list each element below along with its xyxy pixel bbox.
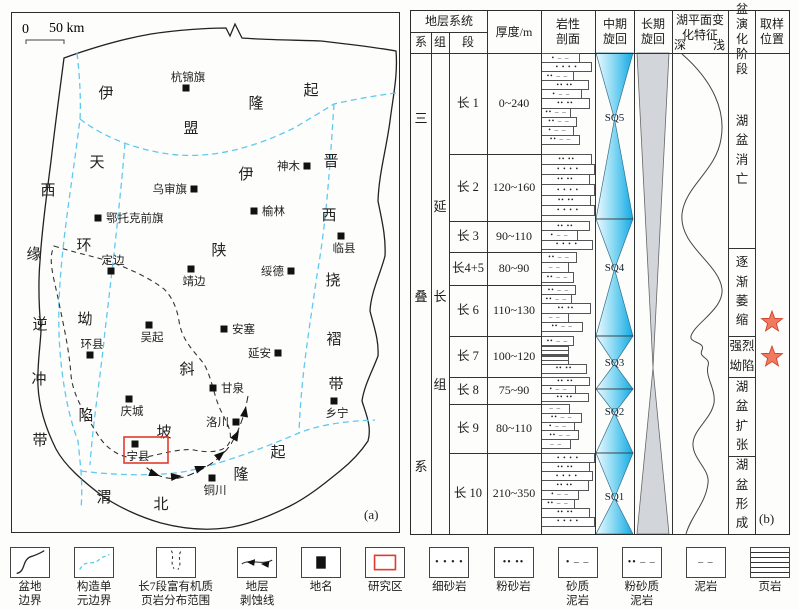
header-thickness: 厚度/m (487, 11, 541, 53)
legend-item-sandy: • – –砂质泥岩 (558, 547, 598, 609)
legend-label: 地名 (310, 581, 333, 595)
header-group: 组 (431, 32, 449, 53)
legend-label: 页岩 (758, 581, 781, 595)
legend-label-line: 泥岩 (694, 581, 717, 595)
legend-swatch-shale (750, 547, 790, 578)
unit-char: 带 (328, 376, 343, 393)
city-marker (188, 266, 195, 273)
legend-label-line: 粉砂岩 (496, 581, 531, 595)
lith-bed-siltym: •• – – (542, 322, 583, 332)
mid-cycle-triangle (596, 269, 633, 336)
legend-swatch-sandy: • – – (558, 547, 598, 578)
legend-label: 盆地边界 (19, 581, 42, 609)
stage-label: 强烈坳陷 (729, 337, 755, 376)
unit-char: 坡 (156, 424, 171, 441)
city-marker (209, 475, 216, 482)
member-cell: 长 8 (449, 377, 487, 404)
city-杭锦旗: 杭锦旗 (171, 70, 206, 92)
city-label: 榆林 (262, 204, 285, 218)
city-label: 吴起 (141, 331, 164, 344)
lith-bed-fine: • • • • (542, 517, 595, 527)
city-鄂托克前旗: 鄂托克前旗 (95, 211, 164, 225)
group-char: 延 (430, 196, 450, 215)
city-label: 甘泉 (221, 381, 244, 395)
legend-label-line: 地名 (310, 581, 333, 595)
unit-char: 逆 (32, 316, 47, 333)
erosion-tooth-glyph (247, 559, 256, 566)
city-marker (338, 233, 345, 240)
lithology-cell: • • • ••• ••• • • ••• ••• – –•• – –•• ••… (542, 453, 595, 534)
legend-label-line: 地层 (240, 581, 275, 595)
city-marker (304, 163, 311, 170)
legend-label: 研究区 (368, 581, 403, 595)
city-铜川: 铜川 (204, 475, 227, 498)
lith-bed-siltym: •• – – (542, 272, 574, 283)
legend-label-line: 泥岩 (624, 595, 659, 609)
city-临县: 临县 (333, 233, 356, 256)
city-label: 定边 (102, 253, 125, 267)
city-label: 靖边 (183, 275, 206, 288)
city-label: 洛川 (206, 415, 229, 429)
legend-swatch-siltym: •• – – (622, 547, 662, 578)
lithology-cell: •• – –•• – –•• ••– –•• – – (542, 285, 595, 336)
city-靖边: 靖边 (183, 266, 206, 289)
legend-item-fine: • • • •细砂岩 (429, 547, 469, 595)
member-cell: 长 10 (449, 453, 487, 534)
legend-label: 泥岩 (694, 581, 717, 595)
erosion-glyph-svg (238, 547, 276, 578)
unit-char: 冲 (31, 371, 46, 388)
city-label: 杭锦旗 (171, 70, 206, 84)
unit-label-伊陕斜坡: 伊陕斜坡 (156, 166, 253, 441)
city-label: 鄂托克前旗 (106, 211, 164, 225)
city-延安: 延安 (248, 346, 282, 360)
thickness-cell: 110~130 (487, 285, 541, 336)
header-member: 段 (449, 32, 487, 53)
legend-swatch-study (365, 547, 405, 578)
legend-item-basin: 盆地边界 (10, 547, 50, 609)
unit-char: 陕 (211, 242, 226, 259)
lithology-cell: •• – –•• •• (542, 336, 595, 377)
city-marker (95, 215, 102, 222)
shale-area-glyph (177, 552, 180, 570)
study-glyph-svg (366, 547, 404, 578)
tect-boundary-yimeng-arc (80, 93, 396, 155)
legend-item-silt: •• ••粉砂岩 (494, 547, 534, 595)
header-lake-deep: 深 (673, 38, 687, 53)
system-char: 三 (411, 108, 431, 127)
legend-item-erosion: 地层剥蚀线 (237, 547, 277, 609)
legend-label-line: 盆地 (19, 581, 42, 595)
legend-label-line: 粉砂质 (624, 581, 659, 595)
member-cell: 长 9 (449, 404, 487, 453)
member-cell: 长 6 (449, 285, 487, 336)
city-定边: 定边 (102, 253, 125, 275)
city-label: 乌审旗 (153, 182, 188, 196)
city-marker (251, 208, 258, 215)
unit-char: 西 (321, 208, 336, 224)
unit-char: 渭 (96, 489, 111, 506)
stage-label: 逐渐萎缩 (735, 253, 749, 331)
header-evolution: 湖盆演化阶段 (729, 11, 756, 53)
system-char: 系 (411, 456, 431, 475)
city-marker (275, 350, 282, 357)
map-generated-layer: 伊盟隆起西缘逆冲带天环坳陷伊陕斜坡晋西挠褶带渭北隆起杭锦旗神木乌审旗鄂托克前旗榆… (26, 24, 396, 529)
unit-char: 伊 (238, 166, 253, 183)
column-border (431, 32, 432, 534)
lithology-cell: •• – –– –•• – – (542, 252, 595, 285)
city-乌审旗: 乌审旗 (153, 182, 198, 196)
legend-item-mud: – –泥岩 (686, 547, 726, 595)
thickness-cell: 120~160 (487, 154, 541, 221)
sq-label-SQ5: SQ5 (595, 112, 634, 124)
lithology-cell: •• ••• – –•• •• (542, 377, 595, 404)
study-glyph (375, 555, 396, 569)
thickness-cell: 80~90 (487, 252, 541, 285)
legend-swatch-tect (74, 547, 114, 578)
stage-湖盆消亡: 湖盆消亡 (729, 53, 755, 248)
city-吴起: 吴起 (141, 322, 164, 345)
stage-label: 湖盆消亡 (735, 112, 749, 190)
stage-湖盆扩张: 湖盆扩张 (729, 377, 755, 456)
city-marker (331, 398, 338, 405)
legend-swatch-fine: • • • • (429, 547, 469, 578)
city-marker (288, 268, 295, 275)
unit-label-渭北隆起: 渭北隆起 (96, 444, 285, 513)
unit-label-天环坳陷: 天环坳陷 (76, 155, 104, 424)
member-cell: 长 3 (449, 221, 487, 252)
unit-char: 天 (89, 155, 104, 171)
basin-boundary-glyph (17, 551, 45, 574)
city-label: 环县 (81, 338, 104, 351)
city-label: 绥德 (261, 264, 284, 278)
header-long-cycle: 长期旋回 (638, 11, 668, 53)
city-marker (108, 268, 115, 275)
unit-char: 起 (270, 444, 285, 461)
thickness-cell: 80~110 (487, 404, 541, 453)
city-marker (191, 186, 198, 193)
group-char: 组 (430, 374, 450, 393)
city-label: 临县 (333, 241, 356, 255)
long-cycle-lower (637, 368, 669, 534)
city-marker (132, 441, 139, 448)
city-神木: 神木 (277, 159, 311, 173)
legend-label-line: 长7段富有机质 (138, 581, 213, 595)
city-label: 庆城 (121, 404, 144, 418)
stage-label: 湖盆形成 (735, 456, 749, 534)
tect-boundary-glyph (80, 554, 109, 569)
legend-label: 粉砂质泥岩 (624, 581, 659, 609)
panel-a-label: (a) (364, 507, 378, 523)
group-char: 长 (430, 286, 450, 305)
legend-label-line: 泥岩 (566, 595, 589, 609)
shale-area-glyph-svg (157, 547, 195, 578)
thickness-cell: 0~240 (487, 53, 541, 154)
column-border (755, 11, 756, 534)
legend-item-shale-area: 长7段富有机质页岩分布范围 (138, 547, 213, 609)
sq-label-SQ1: SQ1 (595, 491, 634, 503)
header-mid-cycle: 中期旋回 (600, 11, 630, 53)
legend-label: 粉砂岩 (496, 581, 531, 595)
legend-swatch-silt: •• •• (494, 547, 534, 578)
row-border (728, 336, 755, 337)
unit-char: 盟 (183, 121, 198, 137)
lith-bed-silt: •• •• (542, 364, 587, 374)
legend-label-line: 构造单 (77, 581, 112, 595)
unit-char: 晋 (323, 153, 338, 170)
legend-label-line: 研究区 (368, 581, 403, 595)
sq-label-SQ4: SQ4 (595, 262, 634, 274)
unit-char: 起 (303, 82, 318, 99)
unit-char: 隆 (233, 466, 248, 483)
legend-label-line: 页岩 (758, 581, 781, 595)
legend-swatch-basin (10, 547, 50, 578)
header-sampling: 取样位置 (759, 11, 785, 53)
legend-item-shale: 页岩 (750, 547, 790, 595)
stage-逐渐萎缩: 逐渐萎缩 (729, 248, 755, 336)
unit-char: 环 (76, 238, 91, 254)
city-庆城: 庆城 (121, 396, 144, 419)
legend-label-line: 细砂岩 (432, 581, 467, 595)
city-榆林: 榆林 (251, 204, 286, 218)
legend-item-siltym: •• – –粉砂质泥岩 (622, 547, 662, 609)
unit-char: 挠 (325, 272, 340, 289)
legend-label: 构造单元边界 (77, 581, 112, 609)
header-strata-system: 地层系统 (411, 11, 487, 32)
unit-char: 缘 (26, 246, 41, 263)
city-环县: 环县 (81, 338, 104, 359)
unit-char: 北 (153, 496, 168, 513)
sq-label-SQ2: SQ2 (595, 406, 634, 418)
stage-强烈坳陷: 强烈坳陷 (729, 336, 755, 377)
legend-swatch-mud: – – (686, 547, 726, 578)
column-border (672, 11, 673, 534)
header-lithology: 岩性剖面 (553, 11, 583, 53)
unit-char: 隆 (248, 95, 263, 112)
place-glyph-svg (302, 547, 340, 578)
legend-label-line: 剥蚀线 (240, 595, 275, 609)
legend-label: 地层剥蚀线 (240, 581, 275, 609)
lith-bed-siltym: •• – – (542, 135, 580, 145)
city-label: 延安 (248, 346, 271, 360)
city-label: 铜川 (204, 483, 227, 497)
member-cell: 长 2 (449, 154, 487, 221)
lithology-cell: •• ••• – –• • • • (542, 221, 595, 252)
city-marker (87, 352, 94, 359)
row-border (728, 377, 755, 378)
sq-label-SQ3: SQ3 (595, 357, 634, 369)
thickness-cell: 100~120 (487, 336, 541, 377)
thickness-cell: 210~350 (487, 453, 541, 534)
legend-item-tect: 构造单元边界 (74, 547, 114, 609)
city-label: 神木 (277, 159, 300, 173)
lith-bed-fine: • • • • (542, 205, 595, 216)
legend-label: 细砂岩 (432, 581, 467, 595)
lith-bed-silt: •• •• (542, 393, 589, 402)
lith-bed-mud: – – (542, 439, 571, 449)
mid-cycle-triangle (596, 119, 633, 219)
map-static-layer: 0 50 km (22, 21, 85, 44)
unit-char: 斜 (179, 361, 194, 378)
lithology-cell: • – –• • • ••• – –•• ••• – –•• •••• – –•… (542, 53, 595, 154)
long-cycle-upper (637, 53, 669, 368)
scale-distance-label: 50 km (49, 21, 85, 36)
column-border (634, 11, 635, 534)
tect-boundary-west (59, 53, 82, 508)
legend-swatch-shale-area (156, 547, 196, 578)
stage-label: 湖盆扩张 (735, 378, 749, 456)
legend-swatch-erosion (237, 547, 277, 578)
erosion-tooth (240, 405, 250, 417)
thickness-cell: 75~90 (487, 377, 541, 404)
header-lake-shallow: 浅 (712, 38, 726, 53)
basin-boundary (38, 24, 397, 529)
lake-level-curve (682, 54, 722, 534)
unit-label-晋西挠褶带: 晋西挠褶带 (321, 153, 343, 393)
legend-label: 长7段富有机质页岩分布范围 (138, 581, 213, 609)
city-marker (221, 326, 228, 333)
city-洛川: 洛川 (206, 415, 240, 429)
unit-char: 带 (32, 432, 47, 449)
row-border (728, 248, 755, 249)
erosion-tooth (194, 462, 207, 473)
city-乡宁: 乡宁 (326, 398, 349, 421)
thickness-cell: 90~110 (487, 221, 541, 252)
map-svg: 0 50 km 伊盟隆起西缘逆冲带天环坳陷伊陕斜坡晋西挠褶带渭北隆起杭锦旗神木乌… (12, 13, 398, 531)
legend-item-study: 研究区 (365, 547, 405, 595)
tect-glyph-svg (75, 547, 113, 578)
row-border (728, 456, 755, 457)
unit-char: 西 (40, 183, 55, 199)
legend-label-line: 砂质 (566, 581, 589, 595)
lith-bed-fine: • • • • (542, 240, 593, 250)
sampling-star (762, 311, 783, 331)
legend-label-line: 边界 (19, 595, 42, 609)
place-glyph (316, 556, 326, 568)
unit-char: 陷 (78, 407, 93, 424)
lithology-cell: – –•• – –• – –•• – –– – (542, 404, 595, 453)
mid-cycle-triangle (596, 498, 633, 534)
unit-char: 褶 (326, 331, 341, 348)
city-marker (146, 322, 153, 329)
city-label: 乡宁 (326, 406, 349, 420)
strat-panel: 地层系统 系 组 段 厚度/m 岩性剖面 中期旋回 长期旋回 湖平面变化特征 深… (410, 10, 790, 535)
figure-canvas: 0 50 km 伊盟隆起西缘逆冲带天环坳陷伊陕斜坡晋西挠褶带渭北隆起杭锦旗神木乌… (0, 0, 798, 610)
erosion-tooth (230, 428, 242, 441)
panel-b-label: (b) (759, 511, 774, 527)
legend-label: 砂质泥岩 (566, 581, 589, 609)
legend-label-line: 元边界 (77, 595, 112, 609)
legend-item-place: 地名 (301, 547, 341, 595)
legend-row: 盆地边界构造单元边界长7段富有机质页岩分布范围地层剥蚀线地名研究区• • • •… (10, 547, 790, 607)
scale-zero-label: 0 (22, 22, 29, 37)
shale-area-glyph (171, 551, 174, 569)
mid-cycle-triangle (596, 413, 633, 453)
unit-char: 坳 (77, 311, 92, 328)
city-label: 安塞 (232, 322, 255, 336)
city-label: 宁县 (127, 449, 150, 463)
city-marker (233, 419, 240, 426)
legend-swatch-place (301, 547, 341, 578)
basin-glyph-svg (11, 547, 49, 578)
city-绥德: 绥德 (261, 264, 295, 278)
legend-label-line: 页岩分布范围 (138, 595, 213, 609)
map-panel: 0 50 km 伊盟隆起西缘逆冲带天环坳陷伊陕斜坡晋西挠褶带渭北隆起杭锦旗神木乌… (11, 12, 400, 533)
city-marker (126, 396, 133, 403)
stage-湖盆形成: 湖盆形成 (729, 456, 755, 534)
scale-bar (26, 40, 64, 44)
lithology-cell: •• ••• • • ••• ••• • • ••• ••• • • • (542, 154, 595, 221)
member-cell: 长 7 (449, 336, 487, 377)
mid-cycle-triangle (596, 53, 633, 119)
row-border (411, 32, 487, 33)
system-char: 叠 (411, 286, 431, 305)
header-system: 系 (411, 32, 431, 53)
member-cell: 长4+5 (449, 252, 487, 285)
city-marker (183, 85, 190, 92)
unit-char: 伊 (98, 85, 113, 102)
city-安塞: 安塞 (221, 322, 256, 336)
sampling-star (762, 346, 783, 366)
member-cell: 长 1 (449, 53, 487, 154)
unit-label-伊盟隆起: 伊盟隆起 (98, 82, 318, 137)
city-marker (210, 385, 217, 392)
